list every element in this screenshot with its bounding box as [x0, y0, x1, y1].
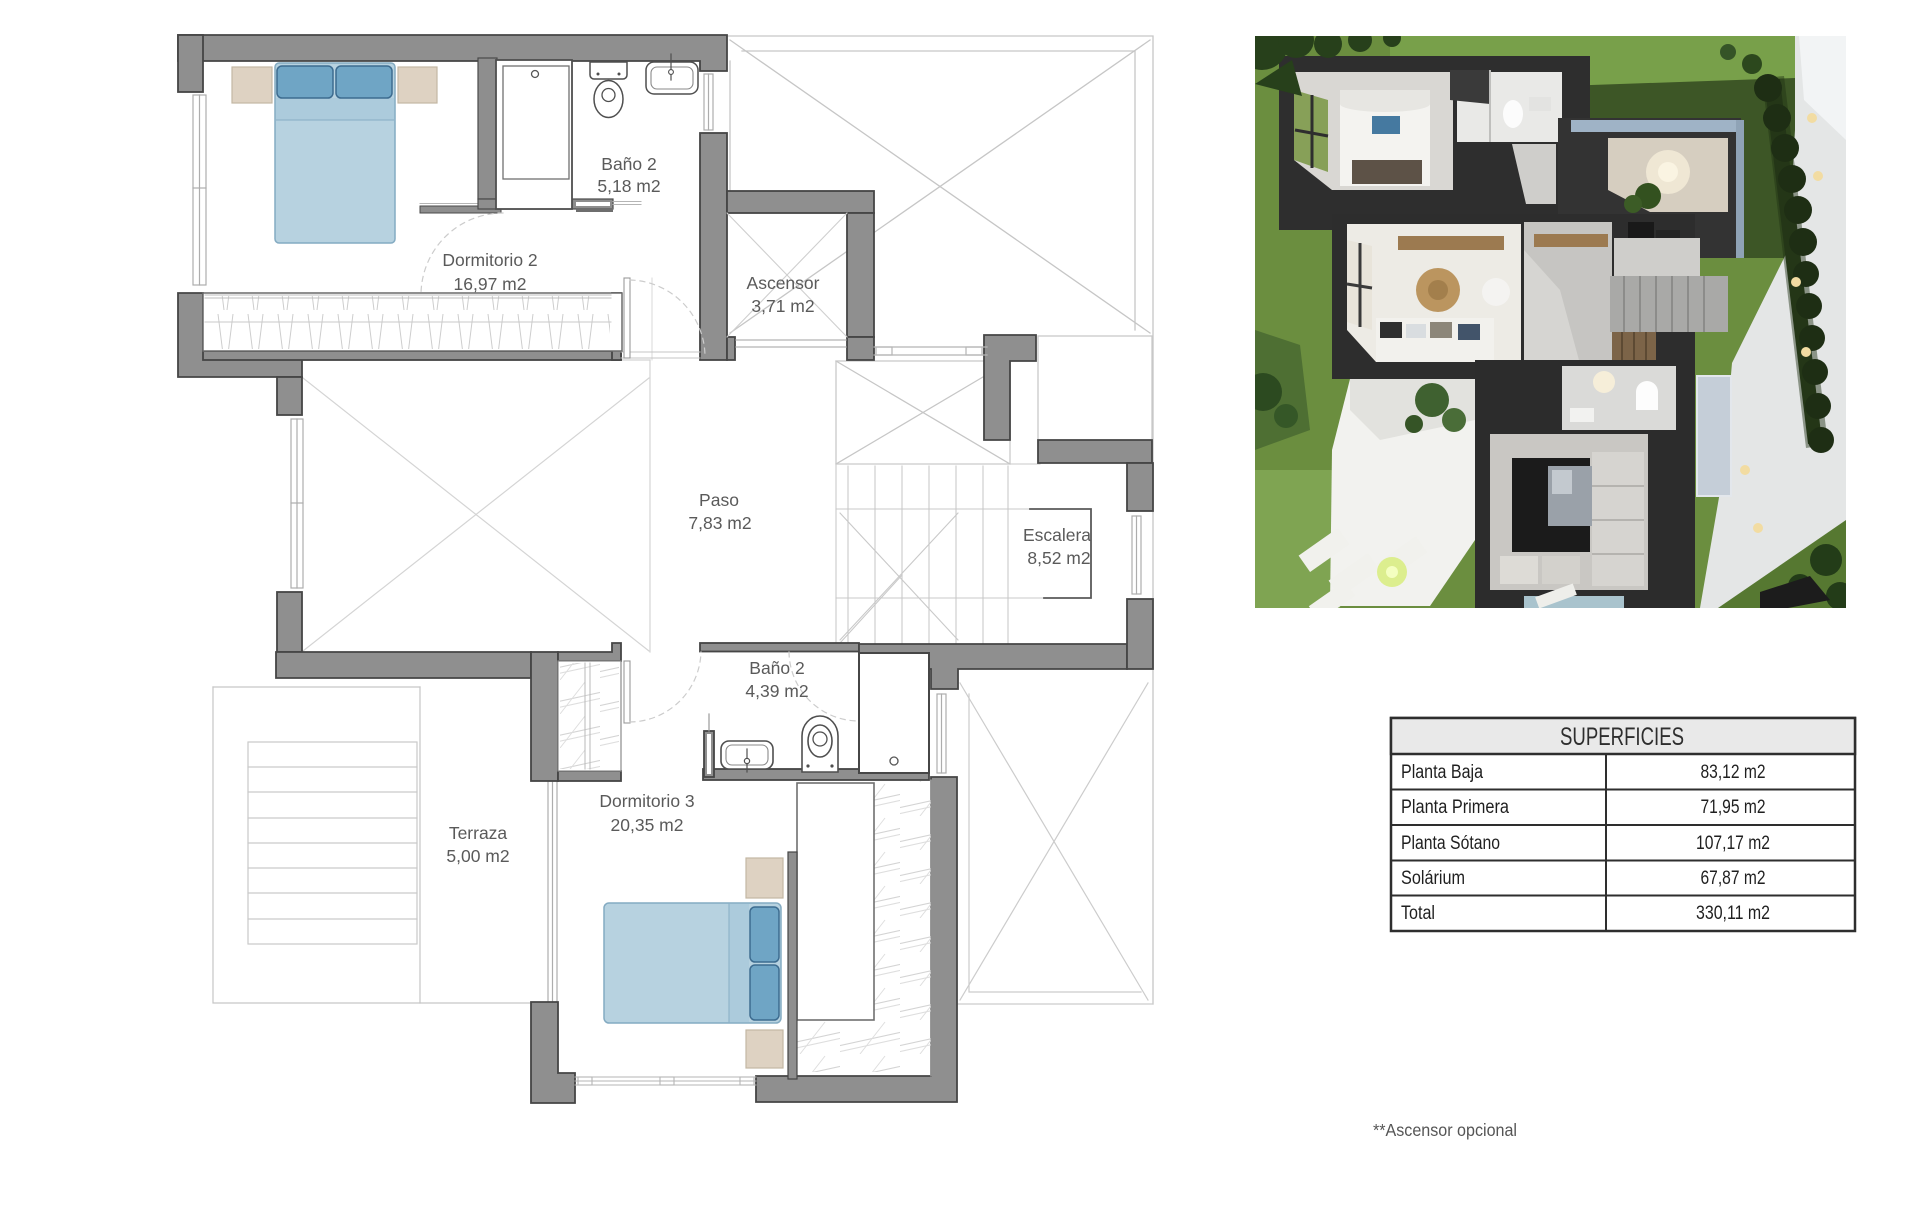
svg-text:7,83 m2: 7,83 m2	[688, 513, 751, 533]
svg-text:Planta Sótano: Planta Sótano	[1401, 833, 1500, 854]
svg-text:Solárium: Solárium	[1401, 868, 1465, 889]
svg-text:Escalera: Escalera	[1023, 525, 1091, 545]
svg-text:5,00 m2: 5,00 m2	[446, 846, 509, 866]
svg-text:**Ascensor opcional: **Ascensor opcional	[1373, 1120, 1517, 1140]
svg-text:Planta Primera: Planta Primera	[1401, 797, 1509, 818]
svg-text:83,12 m2: 83,12 m2	[1701, 762, 1766, 783]
svg-text:67,87 m2: 67,87 m2	[1701, 868, 1766, 889]
svg-text:16,97 m2: 16,97 m2	[454, 274, 527, 294]
svg-text:Ascensor: Ascensor	[747, 273, 820, 293]
svg-text:Baño 2: Baño 2	[601, 154, 656, 174]
svg-text:Dormitorio 2: Dormitorio 2	[442, 250, 537, 270]
svg-text:Baño 2: Baño 2	[749, 658, 804, 678]
svg-text:8,52 m2: 8,52 m2	[1027, 548, 1090, 568]
svg-text:4,39 m2: 4,39 m2	[745, 681, 808, 701]
svg-text:5,18 m2: 5,18 m2	[597, 176, 660, 196]
svg-text:Terraza: Terraza	[449, 823, 508, 843]
svg-text:20,35 m2: 20,35 m2	[611, 815, 684, 835]
svg-text:Dormitorio 3: Dormitorio 3	[599, 791, 694, 811]
svg-text:330,11 m2: 330,11 m2	[1696, 903, 1770, 924]
svg-text:Total: Total	[1401, 903, 1435, 924]
svg-text:Planta Baja: Planta Baja	[1401, 762, 1483, 783]
svg-text:SUPERFICIES: SUPERFICIES	[1560, 723, 1684, 751]
svg-text:107,17 m2: 107,17 m2	[1696, 833, 1770, 854]
svg-text:71,95 m2: 71,95 m2	[1701, 797, 1766, 818]
svg-text:Paso: Paso	[699, 490, 739, 510]
svg-text:3,71 m2: 3,71 m2	[751, 296, 814, 316]
